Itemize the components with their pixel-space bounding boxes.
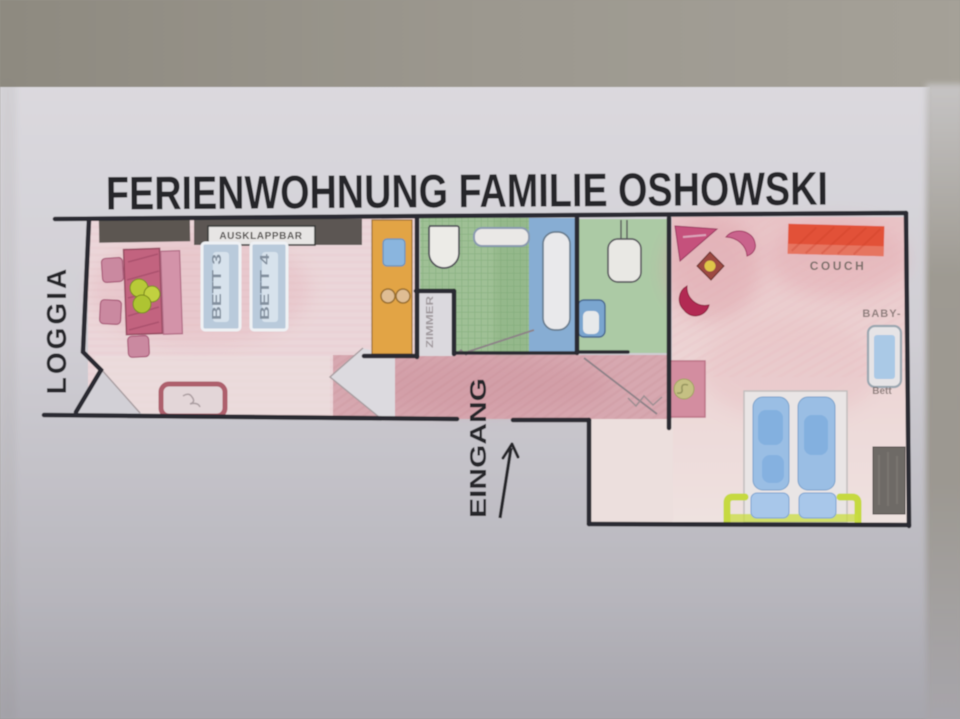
svg-text:FERIENWOHNUNG FAMILIE OSHOWSKI: FERIENWOHNUNG FAMILIE OSHOWSKI [106, 162, 828, 220]
svg-text:LOGGIA: LOGGIA [41, 266, 72, 394]
svg-text:AUSKLAPPBAR: AUSKLAPPBAR [219, 231, 302, 242]
svg-text:BETT 3: BETT 3 [209, 254, 224, 320]
svg-text:ZIMMER: ZIMMER [424, 295, 436, 348]
svg-text:COUCH: COUCH [810, 259, 867, 273]
svg-text:EINGANG: EINGANG [465, 378, 491, 518]
svg-text:BETT 4: BETT 4 [257, 253, 272, 320]
svg-text:BABY-: BABY- [862, 308, 901, 320]
svg-text:Bett: Bett [872, 386, 892, 397]
